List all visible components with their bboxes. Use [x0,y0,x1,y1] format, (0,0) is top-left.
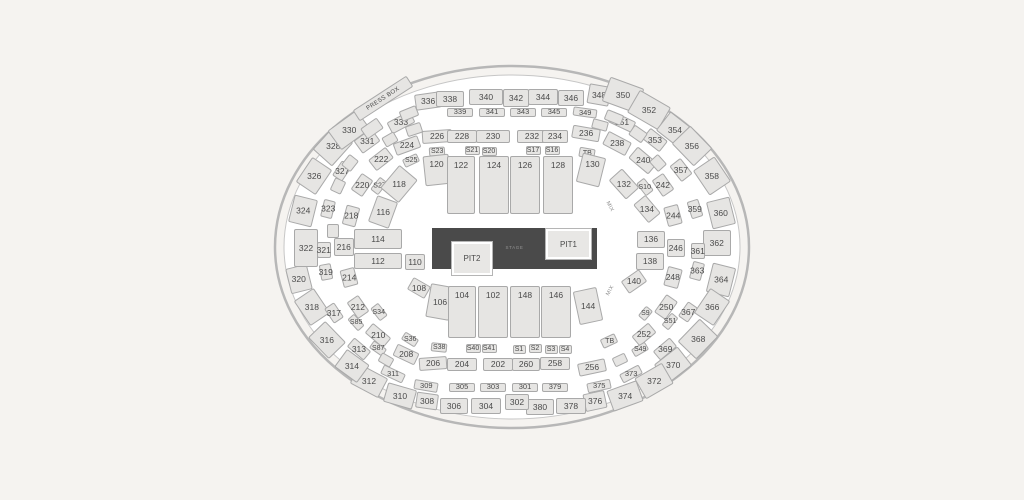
section-label: 250 [659,303,673,312]
section-s2[interactable]: S2 [529,344,542,353]
section-122[interactable]: 122 [447,156,475,214]
section-label: 116 [376,208,390,217]
section-label: 122 [454,161,468,170]
section-206[interactable]: 206 [419,356,448,371]
section-label: 370 [666,361,680,370]
section-label: 306 [447,402,461,411]
section-label: 303 [487,383,500,391]
section-label: S85 [350,319,362,326]
section-label: 320 [292,275,306,284]
section-label: 134 [640,205,654,214]
section-label: 148 [518,291,532,300]
section-label: 316 [320,336,334,345]
section-339[interactable]: 339 [447,108,473,117]
section-label: 144 [581,302,595,311]
section-216[interactable]: 216 [334,238,354,256]
filler-block [327,224,339,238]
section-label: 336 [421,97,435,106]
section-s41[interactable]: S41 [482,344,497,353]
section-label: 252 [637,330,651,339]
section-303[interactable]: 303 [480,383,506,392]
section-label: 118 [392,180,406,189]
section-label: 230 [486,132,500,141]
section-label: 317 [327,309,341,318]
section-label: 202 [491,360,505,369]
section-258[interactable]: 258 [540,357,570,370]
section-label: 338 [443,95,457,104]
section-label: 104 [455,291,469,300]
section-label: 126 [518,161,532,170]
section-319[interactable]: 319 [319,263,334,281]
section-label: 136 [644,235,658,244]
section-379[interactable]: 379 [542,383,568,392]
section-label: S10 [639,184,651,191]
section-label: 361 [691,247,705,256]
section-label: 212 [351,303,365,312]
section-label: 380 [533,403,547,412]
section-label: S49 [634,346,646,353]
section-label: 324 [296,207,310,216]
section-380[interactable]: 380 [526,399,554,415]
section-s38[interactable]: S38 [431,342,448,353]
section-136[interactable]: 136 [637,231,665,248]
pit1-label: PIT1 [560,240,577,249]
section-361[interactable]: 361 [691,243,705,259]
section-146[interactable]: 146 [541,286,571,338]
section-label: S34 [373,309,385,316]
section-346[interactable]: 346 [558,90,584,106]
section-104[interactable]: 104 [448,286,476,338]
section-label: 240 [636,156,650,165]
section-label: 373 [625,370,638,378]
section-label: 112 [371,257,385,266]
section-label: 238 [610,139,624,148]
section-label: 246 [669,244,683,253]
section-label: 330 [342,126,356,135]
section-label: 372 [647,377,661,386]
section-label: S1 [515,346,524,353]
section-362[interactable]: 362 [703,230,731,256]
section-label: 301 [519,383,532,391]
section-label: 204 [455,360,469,369]
section-s20[interactable]: S20 [482,147,497,156]
section-label: 110 [408,258,422,267]
section-label: 346 [564,94,578,103]
section-label: 128 [551,161,565,170]
section-301[interactable]: 301 [512,383,538,392]
section-label: 248 [666,273,680,282]
section-label: 256 [585,363,599,372]
section-label: 312 [362,377,376,386]
section-label: 378 [564,402,578,411]
section-label: S40 [467,345,479,352]
section-label: 345 [548,108,561,116]
section-label: 260 [519,360,533,369]
section-204[interactable]: 204 [447,358,477,371]
section-label: 343 [517,108,530,116]
section-label: 362 [710,239,724,248]
section-s4[interactable]: S4 [559,345,572,354]
section-202[interactable]: 202 [483,358,513,371]
section-label: 356 [685,142,699,151]
section-345[interactable]: 345 [541,108,567,117]
section-label: 359 [688,205,702,214]
section-label: S3 [547,346,556,353]
section-s1[interactable]: S1 [513,345,526,354]
section-label: S16 [546,147,558,154]
section-label: 342 [509,94,523,103]
section-label: 369 [658,345,672,354]
section-label: 146 [549,291,563,300]
section-label: 374 [618,392,632,401]
section-label: 226 [430,132,444,141]
section-label: 124 [487,161,501,170]
pit2-section[interactable]: PIT2 [452,242,492,275]
section-label: 222 [374,155,388,164]
section-label: 340 [479,93,493,102]
section-label: 208 [399,350,413,359]
section-label: 339 [454,108,467,116]
section-label: 308 [420,397,434,406]
section-label: S36 [404,336,416,343]
section-s16[interactable]: S16 [545,146,560,155]
section-label: 132 [617,180,631,189]
section-302[interactable]: 302 [505,394,529,410]
section-label: 106 [433,298,447,307]
section-126[interactable]: 126 [510,156,540,214]
section-321[interactable]: 321 [317,242,331,258]
section-label: 120 [429,160,443,169]
pit2-label: PIT2 [464,254,481,263]
section-label: 349 [579,108,592,116]
section-label: 234 [548,132,562,141]
section-label: 216 [337,243,351,252]
section-138[interactable]: 138 [636,253,664,270]
stage-label: STAGE [506,246,524,251]
section-label: 313 [352,345,366,354]
section-378[interactable]: 378 [556,398,586,414]
section-label: S9 [641,310,650,317]
section-label: S2 [531,345,540,352]
section-label: 244 [666,211,680,220]
section-label: 218 [344,212,358,221]
section-341[interactable]: 341 [479,108,505,117]
section-label: 352 [642,106,656,115]
section-label: 302 [510,398,524,407]
section-148[interactable]: 148 [510,286,540,338]
section-label: 258 [548,359,562,368]
section-label: 108 [412,284,426,293]
section-label: 357 [674,166,688,175]
section-label: 364 [714,276,728,285]
section-304[interactable]: 304 [471,398,501,414]
section-label: 366 [705,303,719,312]
section-label: 311 [387,370,399,378]
section-label: 228 [455,132,469,141]
section-344[interactable]: 344 [528,89,558,105]
section-label: S38 [433,344,445,351]
section-305[interactable]: 305 [449,383,475,392]
section-label: 305 [456,383,469,391]
section-s40[interactable]: S40 [466,344,481,353]
section-124[interactable]: 124 [479,156,509,214]
section-234[interactable]: 234 [542,130,568,143]
section-s17[interactable]: S17 [526,146,541,155]
section-label: 242 [656,181,670,190]
section-label: 354 [668,126,682,135]
section-label: 206 [426,359,440,368]
section-338[interactable]: 338 [436,91,464,107]
section-340[interactable]: 340 [469,89,503,105]
section-label: 353 [648,136,662,145]
section-s3[interactable]: S3 [545,345,558,354]
section-label: 326 [307,172,321,181]
section-label: S21 [466,147,478,154]
section-114[interactable]: 114 [354,229,402,249]
arena-seating-map: 3283303363383403423443463483503523543563… [0,0,1024,500]
section-label: 360 [714,209,728,218]
section-label: S41 [483,345,495,352]
section-230[interactable]: 230 [476,130,510,143]
section-label: 224 [400,141,414,150]
section-label: 102 [486,291,500,300]
section-228[interactable]: 228 [447,130,477,143]
section-label: 310 [393,392,407,401]
section-306[interactable]: 306 [440,398,468,414]
section-label: 321 [317,246,331,255]
section-label: 309 [420,382,433,390]
section-label: 114 [371,235,385,244]
section-343[interactable]: 343 [510,108,536,117]
section-label: 379 [549,383,562,391]
section-s21[interactable]: S21 [465,146,480,155]
section-label: 319 [319,268,333,277]
section-label: 323 [321,205,335,214]
section-label: 344 [536,93,550,102]
section-110[interactable]: 110 [405,254,425,270]
section-label: 350 [616,91,630,100]
section-128[interactable]: 128 [543,156,573,214]
section-label: S25 [405,157,417,164]
section-label: 130 [585,160,599,169]
section-label: TB [605,338,614,345]
section-label: S87 [372,345,384,352]
section-112[interactable]: 112 [354,253,402,269]
section-label: 358 [705,172,719,181]
pit1-section[interactable]: PIT1 [546,229,591,259]
section-342[interactable]: 342 [503,89,529,107]
section-308[interactable]: 308 [415,392,439,411]
section-label: 214 [342,273,356,282]
section-label: S20 [483,148,495,155]
section-label: 368 [691,335,705,344]
section-label: 210 [371,331,385,340]
section-label: 138 [643,257,657,266]
section-label: 318 [305,303,319,312]
section-label: S17 [527,147,539,154]
section-label: 375 [593,382,606,390]
section-label: 314 [345,362,359,371]
section-label: 140 [627,277,641,286]
section-label: 322 [299,244,313,253]
section-label: 363 [690,267,704,276]
section-label: 236 [579,129,593,138]
section-322[interactable]: 322 [294,229,318,267]
section-102[interactable]: 102 [478,286,508,338]
section-label: 341 [486,108,499,116]
section-label: 220 [355,181,369,190]
section-label: S4 [561,346,570,353]
section-label: 367 [681,308,695,317]
section-260[interactable]: 260 [512,358,540,371]
section-label: 232 [525,132,539,141]
section-label: S51 [664,318,676,325]
section-246[interactable]: 246 [667,239,685,257]
section-label: 376 [588,397,602,406]
section-label: 304 [479,402,493,411]
